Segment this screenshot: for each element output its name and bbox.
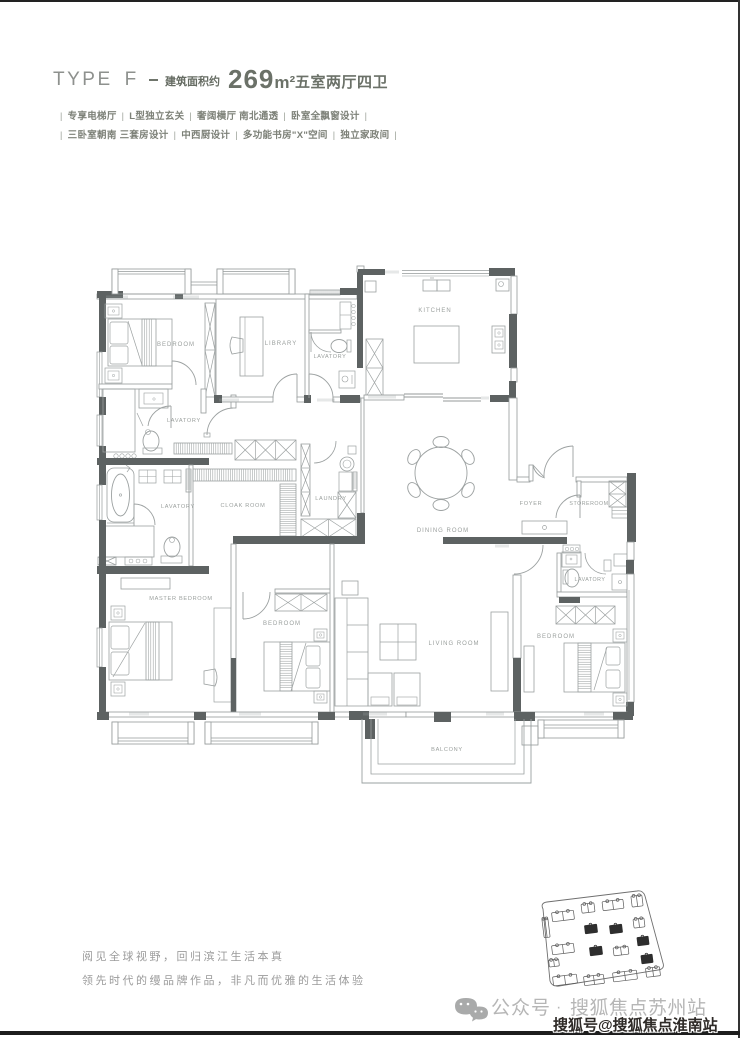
svg-text:公众号: 公众号: [491, 997, 551, 1019]
